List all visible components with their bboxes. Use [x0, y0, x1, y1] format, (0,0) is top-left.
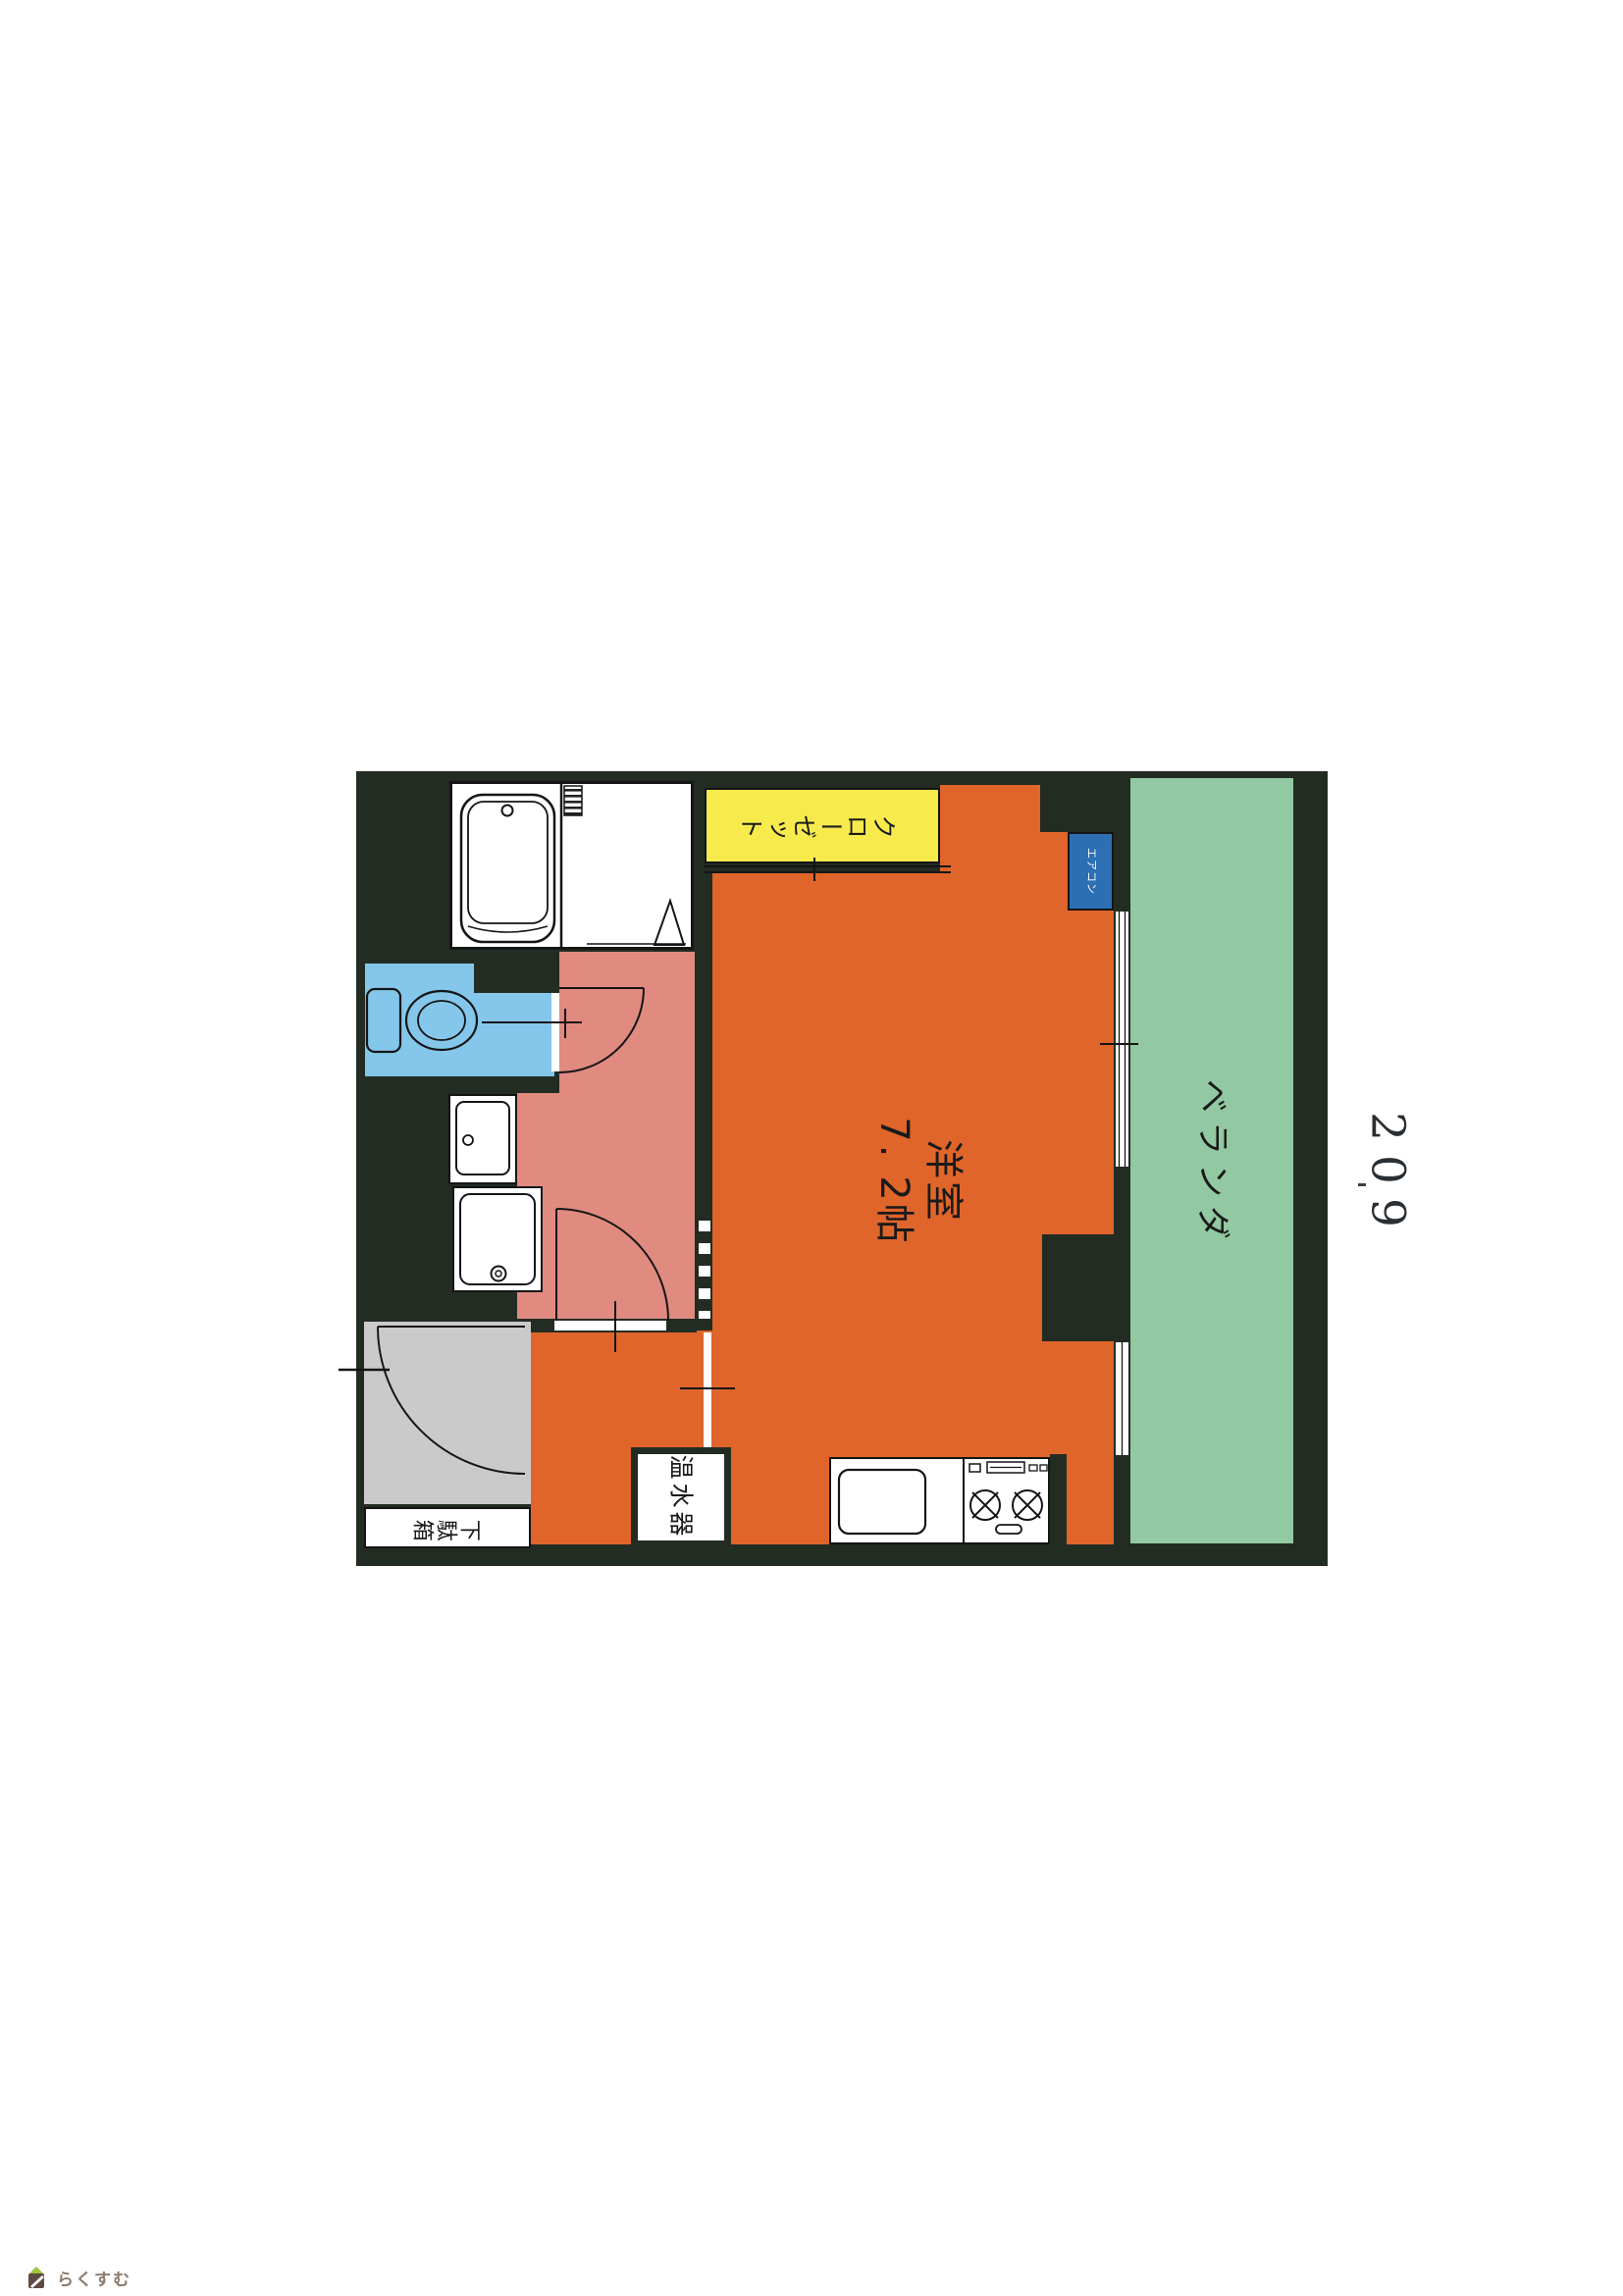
toilet-door-swing-icon [559, 988, 644, 1072]
unit-number: 209 [1361, 1112, 1415, 1241]
washbasin-icon [456, 1102, 509, 1174]
shoe-box-label: 下駄箱 [411, 1514, 482, 1541]
kitchen-sink-stove-icon [839, 1459, 1047, 1542]
unit-number-underline-mark [1358, 1183, 1366, 1186]
main-room-label: 洋室 7. 2帖 [869, 1117, 968, 1245]
bath-door-icon [587, 901, 686, 949]
closet-label: クローゼット [738, 809, 897, 840]
site-logo: らくすむ [26, 2265, 131, 2290]
balcony-label: ベランダ [1191, 1079, 1233, 1248]
window-tracks [1100, 912, 1138, 1455]
entrance-door-swing-icon [339, 1327, 525, 1474]
hall-door-swing-icon [556, 1209, 668, 1352]
toilet-icon [367, 989, 582, 1052]
aircon-label: エアコン [1084, 848, 1098, 895]
main-room-name: 洋室 [918, 1117, 968, 1245]
house-logo-icon [26, 2265, 51, 2290]
site-logo-text: らくすむ [57, 2266, 131, 2290]
plan-linework [356, 771, 1328, 1566]
closet-sliding-door-icon [705, 858, 951, 881]
bathtub-icon [461, 783, 582, 948]
water-heater-label: 温水器 [665, 1454, 696, 1539]
floor-plan: 洋室 7. 2帖 ベランダ クローゼット エアコン 温水器 下駄箱 [356, 771, 1328, 1566]
laundry-pan-icon [460, 1194, 535, 1284]
main-room-size: 7. 2帖 [869, 1117, 918, 1245]
